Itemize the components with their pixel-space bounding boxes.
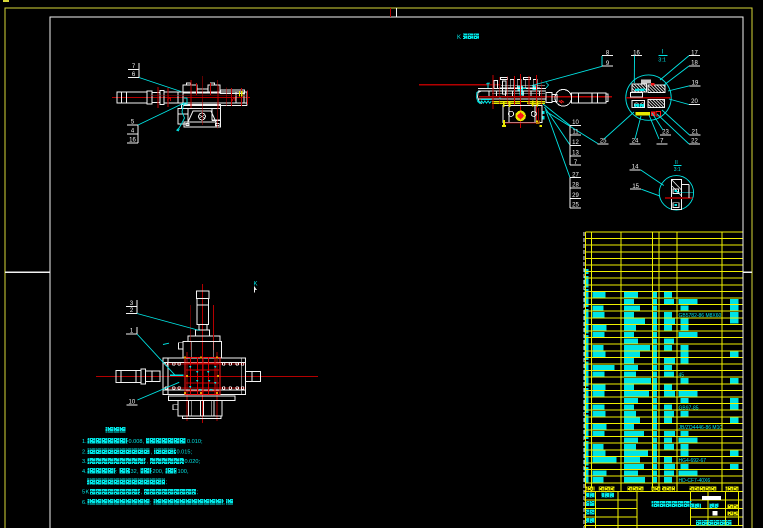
svg-text:32: 32 [131,469,137,475]
svg-text:0.010: 0.010 [187,439,201,445]
svg-text:6.: 6. [82,500,87,506]
svg-text:1.: 1. [82,439,87,445]
svg-text:0.020: 0.020 [185,459,199,465]
svg-text:4.: 4. [82,469,87,475]
svg-text:3:1: 3:1 [674,167,681,173]
svg-text:200: 200 [153,469,162,475]
svg-text:3.: 3. [82,459,87,465]
svg-text:0.008: 0.008 [129,439,143,445]
svg-text:K: K [86,490,90,496]
svg-text:K: K [457,35,461,41]
svg-text:100: 100 [178,469,187,475]
svg-text:2.: 2. [82,449,87,455]
svg-text:0.015: 0.015 [177,449,191,455]
svg-text:3:1: 3:1 [658,58,666,64]
